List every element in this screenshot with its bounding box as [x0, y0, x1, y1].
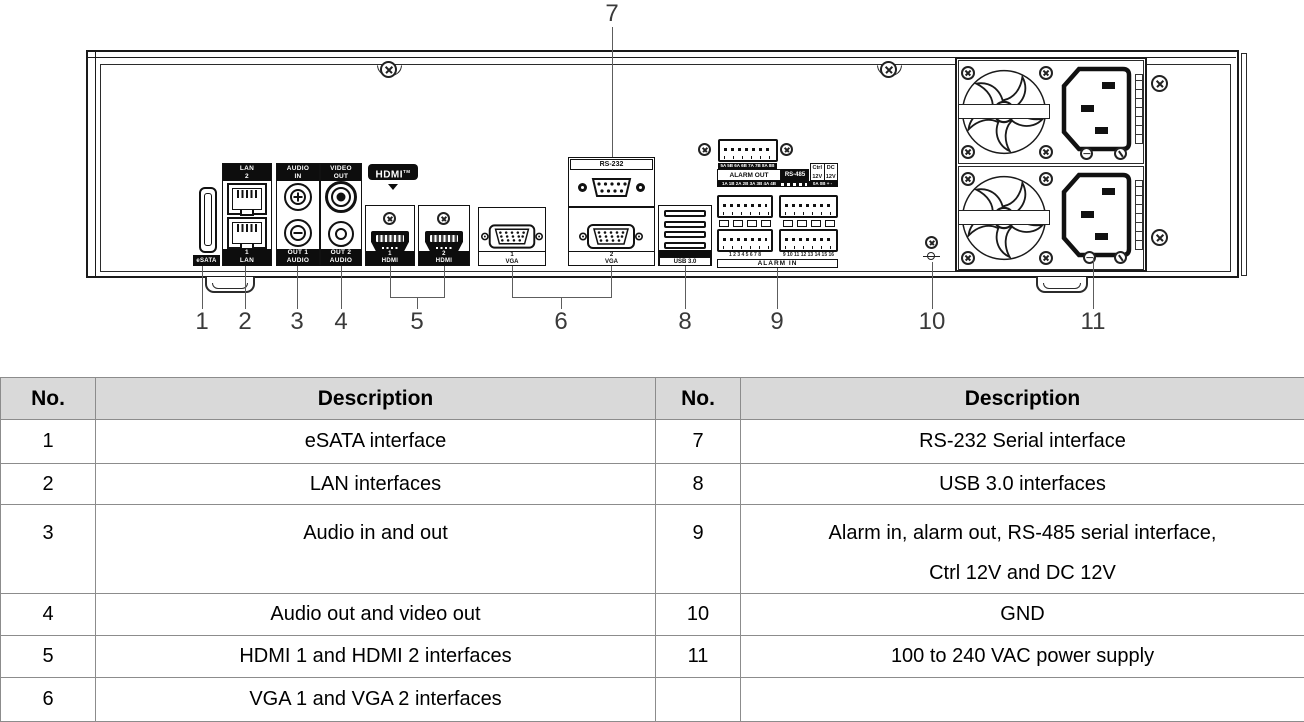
callout-line-9: [777, 268, 778, 309]
rs485-label: RS-485: [781, 169, 809, 181]
rear-panel-diagram: eSATA LAN2 1LAN AUDIOIN OUT 1AUDIO VIDEO…: [0, 0, 1304, 377]
cell-no: 6: [1, 678, 96, 722]
audio-out1-jack: [284, 219, 312, 247]
table-row: 6 VGA 1 and VGA 2 interfaces: [1, 678, 1304, 722]
alarm-in-connector-2: [779, 195, 838, 252]
screw-icon: [1039, 172, 1053, 186]
audio-in-jack: [284, 183, 312, 211]
description-table: No. Description No. Description 1 eSATA …: [0, 377, 1304, 722]
hdmi-port-2: [425, 231, 463, 252]
cell-description: VGA 1 and VGA 2 interfaces: [96, 678, 656, 722]
callout-line-4: [341, 266, 342, 309]
alarm-in-pins-1-8: 1 2 3 4 5 6 7 8: [717, 252, 773, 259]
callout-6: 6: [547, 308, 575, 336]
table-row: 5 HDMI 1 and HDMI 2 interfaces 11 100 to…: [1, 636, 1304, 678]
esata-label: eSATA: [193, 255, 220, 266]
screw-icon: [1039, 145, 1053, 159]
callout-line-1: [202, 266, 203, 309]
vga1-label: 1VGA: [479, 251, 545, 265]
audio-out2-label: OUT 2AUDIO: [321, 249, 361, 265]
table-row: 4 Audio out and video out 10 GND: [1, 594, 1304, 636]
cell-no: 2: [1, 464, 96, 505]
ctrl-dc-label: CtrlDC 12V12V: [810, 163, 838, 181]
hdmi-logo: HDMITM: [368, 164, 418, 180]
screw-icon: [961, 145, 975, 159]
alarm-in-connector-1: [717, 195, 773, 252]
cell-description: Audio in and out: [96, 505, 656, 594]
gnd-screw: [925, 236, 938, 249]
table-row: 3 Audio in and out 9 Alarm in, alarm out…: [1, 505, 1304, 594]
alarm-out-connector: [718, 139, 778, 162]
rs232-port: [577, 171, 646, 204]
hdmi1-label: 1HDMI: [366, 251, 414, 265]
callout-8: 8: [671, 308, 699, 336]
hdmi-port-1: [371, 231, 409, 252]
lan-port-1: [227, 217, 267, 249]
callout-line-10: [932, 262, 933, 309]
alarm-out-label: ALARM OUT: [717, 169, 781, 181]
cell-description: [741, 678, 1304, 722]
screw-icon: [1151, 229, 1168, 246]
cell-description: 100 to 240 VAC power supply: [741, 636, 1304, 678]
table-row: 1 eSATA interface 7 RS-232 Serial interf…: [1, 420, 1304, 464]
vga-port-1: [481, 222, 543, 251]
power-inlet-icon: [1058, 172, 1134, 258]
table-header-row: No. Description No. Description: [1, 378, 1304, 420]
chassis-foot: [1036, 277, 1088, 293]
lan-port-2: [227, 183, 267, 215]
cell-description: RS-232 Serial interface: [741, 420, 1304, 464]
screw-icon: [698, 143, 711, 156]
usb-label: USB 3.0: [659, 257, 711, 266]
chassis-left-edge: [95, 52, 96, 276]
header-no-right: No.: [656, 378, 741, 420]
cell-description: Audio out and video out: [96, 594, 656, 636]
cell-no: 11: [656, 636, 741, 678]
screw-icon: [880, 61, 897, 78]
lan-top-label: LAN2: [223, 164, 271, 181]
esata-slot: [204, 193, 212, 246]
header-description-right: Description: [741, 378, 1304, 420]
cell-no: 1: [1, 420, 96, 464]
screw-slotted-icon: [1114, 147, 1127, 160]
cell-description: LAN interfaces: [96, 464, 656, 505]
vga-port-2: [578, 222, 644, 251]
table-row: 2 LAN interfaces 8 USB 3.0 interfaces: [1, 464, 1304, 505]
video-out-bnc: [325, 181, 357, 213]
inlet-bracket: [1135, 180, 1143, 250]
cell-no: 9: [656, 505, 741, 594]
callout-9: 9: [763, 308, 791, 336]
screw-icon: [1151, 75, 1168, 92]
cell-no: 8: [656, 464, 741, 505]
audio-out1-label: OUT 1AUDIO: [277, 249, 319, 265]
callout-bracket-5: [390, 266, 391, 297]
header-no-left: No.: [1, 378, 96, 420]
callout-7: 7: [598, 0, 626, 28]
video-out-label: VIDEOOUT: [321, 164, 361, 181]
callout-line-11: [1093, 258, 1094, 309]
rs485-pins-marks: [781, 183, 807, 186]
screw-slotted-icon: [1083, 251, 1096, 264]
cell-no: 5: [1, 636, 96, 678]
inlet-bracket: [1135, 74, 1143, 144]
screw-icon: [961, 251, 975, 265]
callout-bracket-6: [512, 297, 612, 298]
description-line-2: Ctrl 12V and DC 12V: [741, 553, 1304, 593]
callout-bracket-5: [444, 266, 445, 297]
callout-5: 5: [403, 308, 431, 336]
alarm-in-pins-9-16: 9 10 11 12 13 14 15 16: [779, 252, 838, 259]
hdmi2-label: 2HDMI: [419, 251, 469, 265]
chassis-right-face: [1241, 53, 1247, 276]
screw-icon: [437, 212, 450, 225]
header-description-left: Description: [96, 378, 656, 420]
lan-bottom-label: 1LAN: [223, 249, 271, 265]
hdmi-arrow-icon: [388, 184, 398, 190]
callout-line-8: [685, 266, 686, 309]
cell-no: 10: [656, 594, 741, 636]
cell-description: USB 3.0 interfaces: [741, 464, 1304, 505]
callout-line-7: [612, 27, 613, 157]
screw-icon: [380, 61, 397, 78]
callout-2: 2: [231, 308, 259, 336]
gnd-lug-icon: [923, 252, 940, 261]
audio-in-label: AUDIOIN: [277, 164, 319, 181]
callout-10: 10: [914, 308, 950, 336]
callout-line-2: [245, 266, 246, 309]
cell-description: eSATA interface: [96, 420, 656, 464]
screw-icon: [1039, 251, 1053, 265]
screw-icon: [383, 212, 396, 225]
screw-icon: [961, 66, 975, 80]
cell-no: 4: [1, 594, 96, 636]
cell-no: 7: [656, 420, 741, 464]
cell-description: GND: [741, 594, 1304, 636]
callout-1: 1: [188, 308, 216, 336]
callout-4: 4: [327, 308, 355, 336]
cell-description: Alarm in, alarm out, RS-485 serial inter…: [741, 505, 1304, 594]
usb-bar: [659, 250, 711, 257]
alarm-in-label: ALARM IN: [717, 259, 838, 268]
power-inlet-icon: [1058, 66, 1134, 152]
usb-ports: [664, 210, 706, 252]
fan-bracket: [958, 104, 1050, 119]
callout-bracket-6: [512, 266, 513, 297]
screw-icon: [780, 143, 793, 156]
description-line-1: Alarm in, alarm out, RS-485 serial inter…: [741, 513, 1304, 553]
cell-no: [656, 678, 741, 722]
screw-icon: [961, 172, 975, 186]
fan-bracket: [958, 210, 1050, 225]
cell-no: 3: [1, 505, 96, 594]
cell-description: HDMI 1 and HDMI 2 interfaces: [96, 636, 656, 678]
callout-11: 11: [1075, 308, 1111, 336]
rs232-label: RS-232: [570, 159, 653, 170]
screw-slotted-icon: [1114, 251, 1127, 264]
audio-out2-jack: [328, 221, 354, 247]
vga2-label: 2VGA: [569, 251, 654, 265]
callout-line-3: [297, 266, 298, 309]
callout-3: 3: [283, 308, 311, 336]
screw-slotted-icon: [1080, 147, 1093, 160]
screw-icon: [1039, 66, 1053, 80]
callout-bracket-6: [611, 266, 612, 297]
description-table-wrap: No. Description No. Description 1 eSATA …: [0, 377, 1304, 722]
alarm-out-pins-bottom: 1A 1B 2A 2B 3A 3B 4A 4B 0A 0B + -: [717, 181, 838, 187]
chassis-foot: [205, 277, 255, 293]
